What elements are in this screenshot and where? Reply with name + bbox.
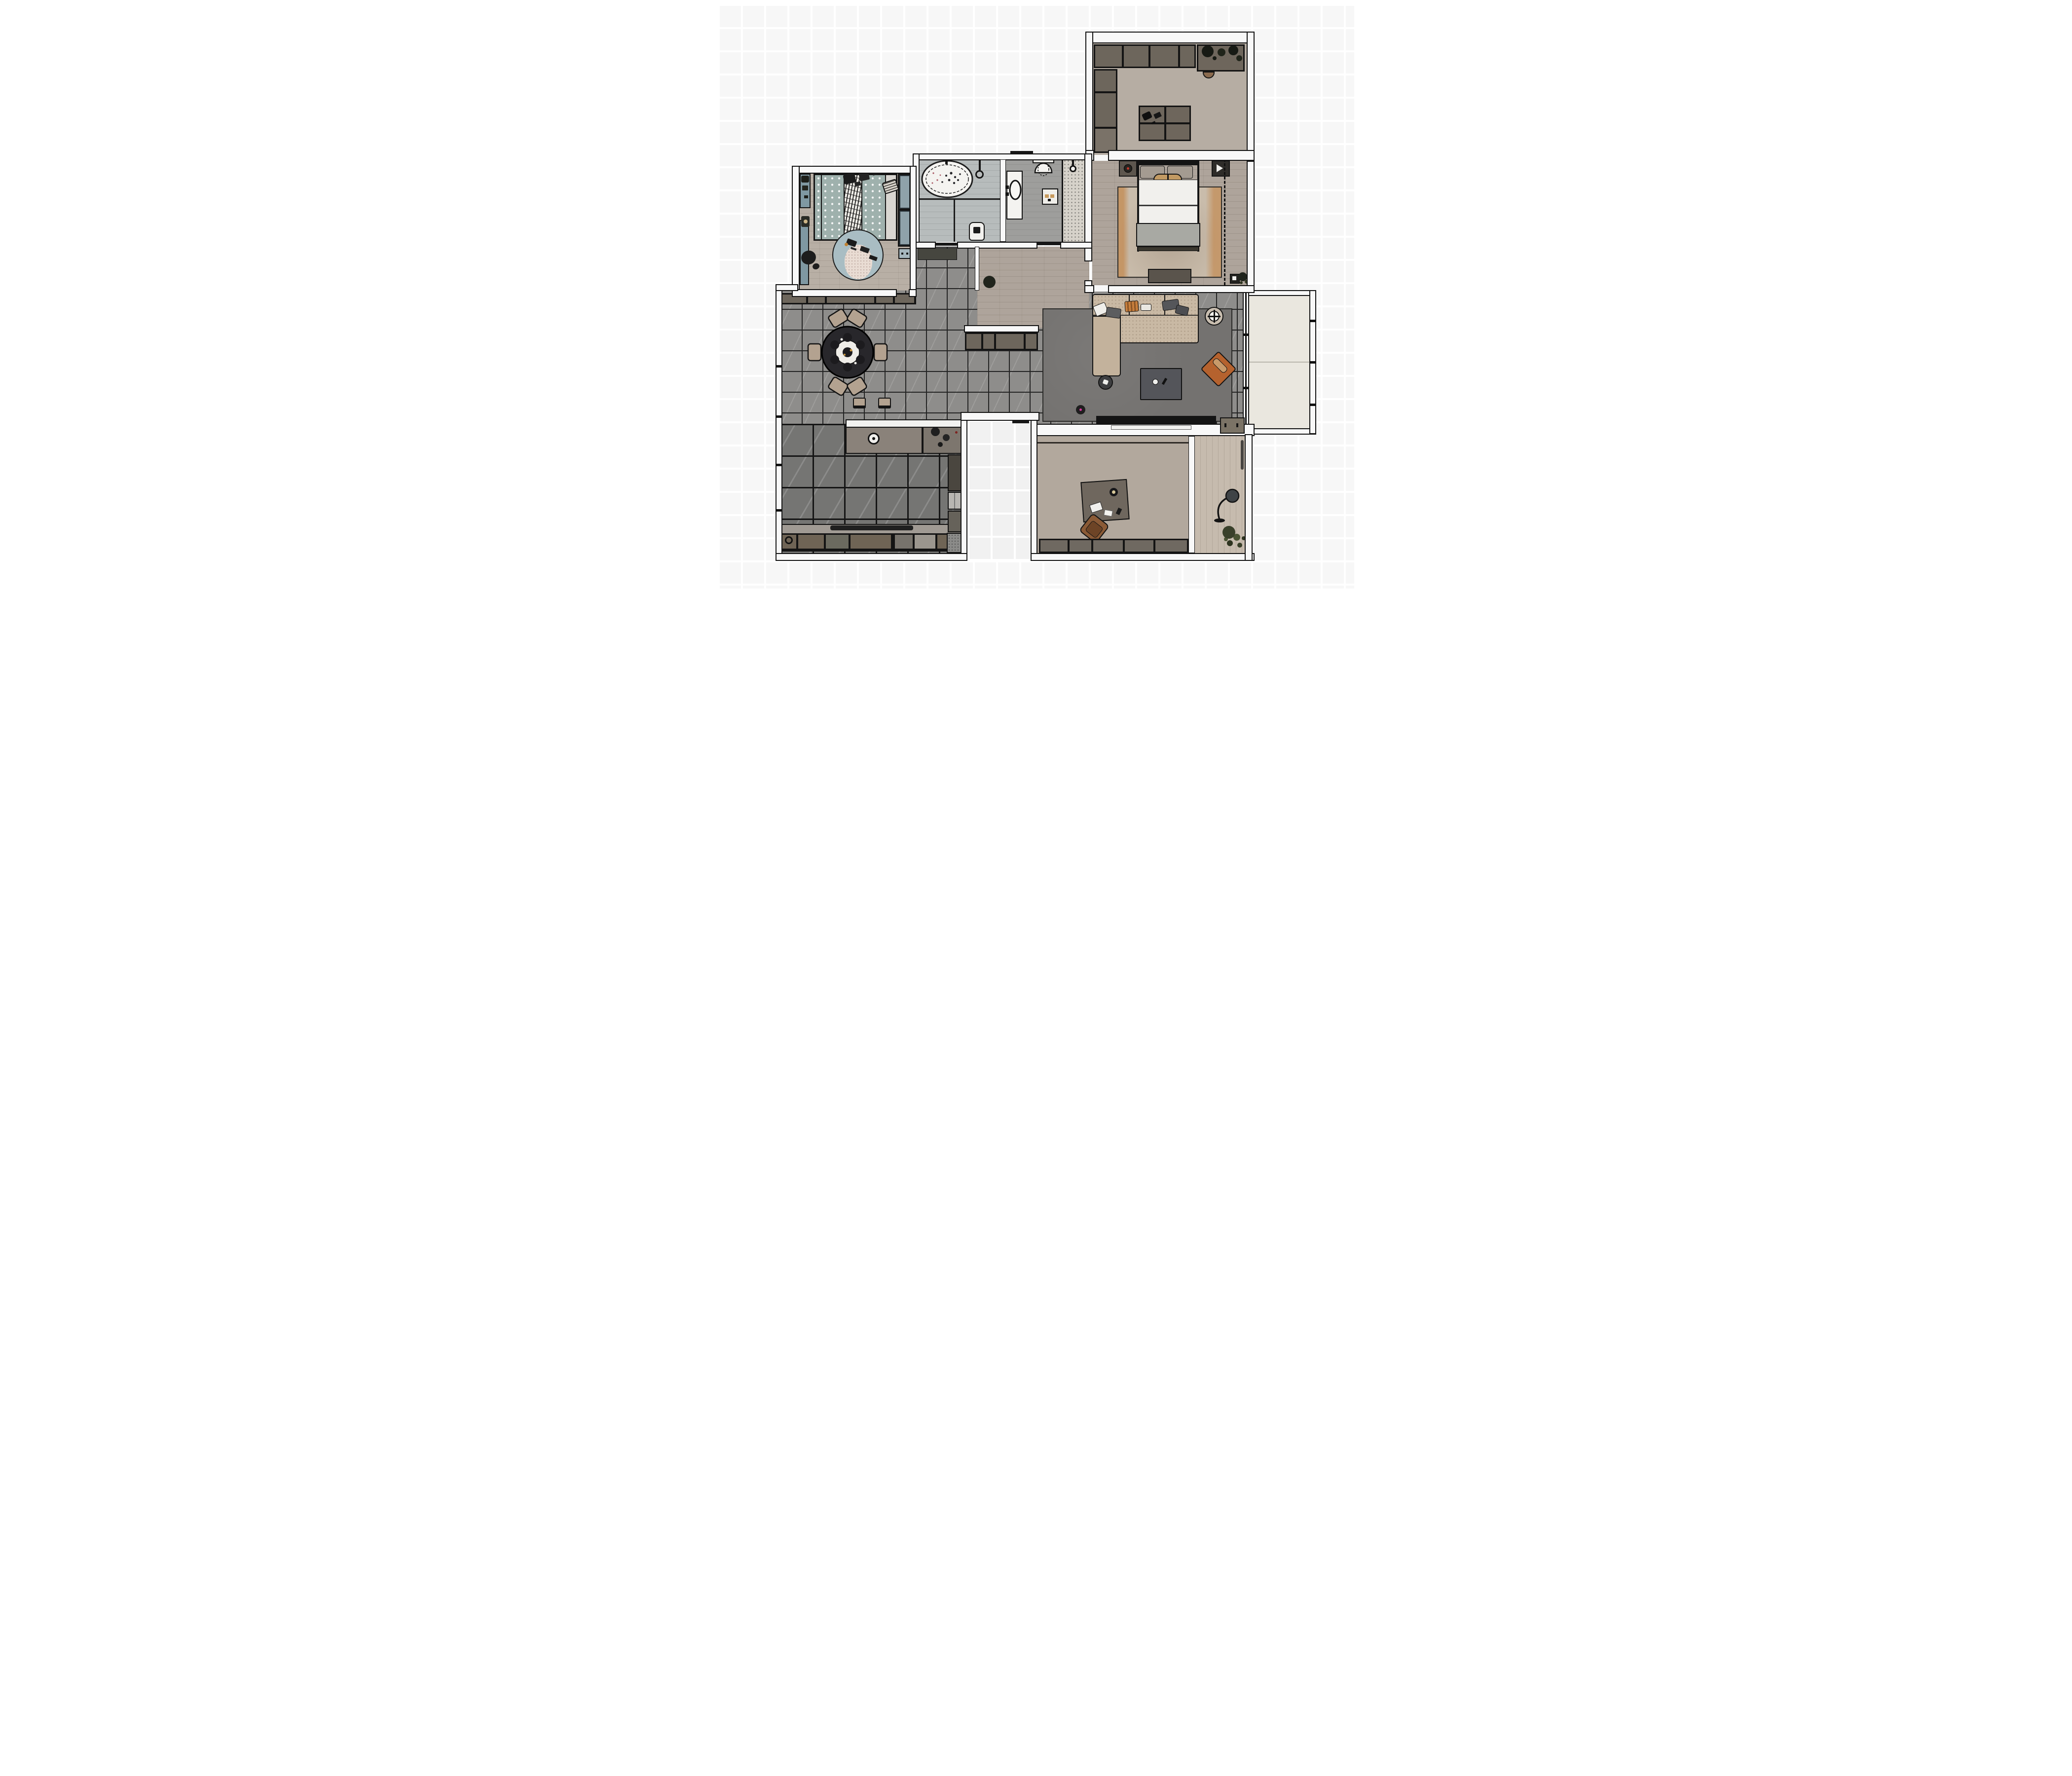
- wc-basin: [1007, 179, 1022, 201]
- arc-floor-lamp: [1209, 486, 1243, 525]
- bed-headboard: [1137, 161, 1199, 165]
- closet-top-wall: [1085, 32, 1255, 43]
- closet-left-wardrobes: [1094, 69, 1117, 153]
- kids-rug-toy-orange: [845, 243, 848, 246]
- left-corner-cap: [776, 284, 798, 291]
- wc-toilet: [1032, 158, 1055, 182]
- sofa-pillow-small-white: [1141, 304, 1151, 311]
- bedroom-bottom-wall-b: [1108, 285, 1255, 293]
- balcony-floor-seam: [1248, 362, 1310, 363]
- entry-notch: [967, 420, 1031, 560]
- kitchen-right-wall: [961, 420, 967, 560]
- island-spice-dot: [955, 431, 958, 434]
- bed-duvet: [1139, 180, 1198, 224]
- bath-bottom-wall-c: [1060, 242, 1092, 249]
- sofa-pillow-gray: [1106, 307, 1121, 319]
- bath-shower-fixture-stem: [979, 159, 981, 170]
- bed-throw-gray: [1136, 223, 1200, 247]
- kitchen-corner-worktop: [947, 533, 962, 553]
- kitchen-island: [846, 419, 963, 454]
- island-cookware: [931, 427, 940, 436]
- tv-console: [1096, 416, 1216, 424]
- left-wall-window-tick-4: [776, 509, 782, 512]
- loggia-plant: [1222, 526, 1235, 539]
- closet-top-wardrobes: [1094, 44, 1196, 68]
- window-mullion-b: [1243, 387, 1249, 389]
- kitchen-pantry-tall: [948, 454, 962, 491]
- loggia-wall-shadow: [1241, 440, 1244, 470]
- kitchen-bottom-wall: [776, 553, 967, 561]
- living-corner-cabinet: [1220, 417, 1245, 434]
- closet-island: [1139, 106, 1191, 141]
- bed-footboard: [1138, 247, 1199, 251]
- bedroom-bottom-wall-a: [1084, 285, 1094, 293]
- kids-bottom-wall-b: [909, 289, 917, 297]
- bath-wc-divider-wall: [1000, 159, 1006, 242]
- bedroom-corner-plant: [1238, 272, 1247, 281]
- tv-screen: [1111, 425, 1191, 430]
- kids-left-wall: [792, 166, 800, 297]
- dining-set: [803, 308, 892, 397]
- kitchen-tall-cabinet: [948, 511, 962, 532]
- window-glass-line: [1245, 292, 1247, 432]
- study-loggia-divider: [1188, 436, 1195, 553]
- loggia-right-wall: [1245, 434, 1253, 561]
- kitchen-base-cabinets: [781, 533, 961, 550]
- left-wall-window-tick-2: [776, 415, 782, 418]
- shower-head: [1070, 165, 1076, 172]
- kids-right-wall: [910, 166, 917, 291]
- kitchen-hood-shelf: [830, 525, 913, 530]
- closet-planter-plants: [1202, 45, 1214, 57]
- bar-stool-2-seat: [879, 406, 890, 408]
- kids-lamp-bulb: [804, 220, 808, 223]
- bathroom-floor-joint-v: [954, 198, 955, 242]
- kids-drawer-handles: [901, 253, 903, 255]
- closet-left-wall: [1085, 32, 1093, 156]
- left-wall-window-tick-3: [776, 464, 782, 466]
- bath-door-leaf: [936, 243, 957, 246]
- kitchen-fridge-split: [954, 493, 955, 509]
- island-sink-drain: [872, 437, 875, 440]
- bedroom-corner-frame-inner: [1232, 276, 1236, 280]
- left-wall-window-tick-1: [776, 365, 782, 368]
- window-mullion-a: [1243, 333, 1249, 336]
- notch-top-wall: [961, 412, 1039, 421]
- bath-bottom-wall-b: [957, 242, 1037, 249]
- bedroom-tv-console: [1148, 269, 1191, 283]
- wc-floor-panel-glyph: [1045, 194, 1049, 198]
- coffee-table: [1140, 368, 1182, 400]
- sideboard-wall: [964, 325, 1039, 333]
- nightstand-right-glyph: [1217, 164, 1223, 172]
- hall-divider-wall: [975, 247, 979, 291]
- wc-door-leaf: [1037, 242, 1060, 245]
- pedestal-table-cross2: [1208, 316, 1221, 317]
- washing-machine-door: [973, 227, 980, 233]
- study-left-wall: [1031, 420, 1037, 560]
- study-bottom-wall: [1031, 553, 1255, 561]
- closet-right-wall: [1247, 32, 1255, 156]
- living-corner-cabinet-marks: [1224, 423, 1226, 427]
- study-desk: [1080, 479, 1129, 522]
- hallway-door-mat: [918, 248, 957, 260]
- railing-mullion-1: [1309, 320, 1316, 322]
- sliding-wardrobe-dashed: [1224, 159, 1225, 285]
- nightstand-left-lamp-dot: [1127, 167, 1129, 170]
- wc-right-wall: [1084, 153, 1092, 249]
- wc-floor-panel: [1042, 188, 1058, 205]
- kids-top-wall: [792, 166, 917, 174]
- railing-mullion-3: [1309, 404, 1316, 406]
- floor-plan: [691, 0, 1381, 592]
- bar-stool-1-seat: [854, 406, 865, 408]
- kids-shelf-toys: [801, 176, 809, 183]
- coffee-table-mug: [1152, 379, 1158, 385]
- kids-bottom-wall-a: [792, 289, 897, 297]
- bathtub: [921, 159, 974, 199]
- sofa-chaise: [1092, 316, 1121, 376]
- hall-sideboard: [965, 333, 1038, 350]
- left-outer-wall: [776, 287, 782, 560]
- desk-lamp-bulb: [1112, 490, 1115, 494]
- study-cabinet-row: [1039, 539, 1188, 553]
- bed-duvet-fold: [1139, 205, 1197, 206]
- kids-rug-center: [845, 245, 872, 279]
- railing-mullion-2: [1309, 361, 1316, 364]
- study-wall-rail: [1036, 442, 1188, 444]
- closet-bedroom-wall-b: [1108, 150, 1255, 161]
- robot-vacuum-dot: [1079, 408, 1082, 411]
- hallway-plant: [983, 276, 996, 288]
- bedroom-right-wall: [1247, 161, 1255, 292]
- sofa-pillow-orange-striped: [1124, 300, 1139, 312]
- bath-shower-fixture-head: [975, 170, 984, 179]
